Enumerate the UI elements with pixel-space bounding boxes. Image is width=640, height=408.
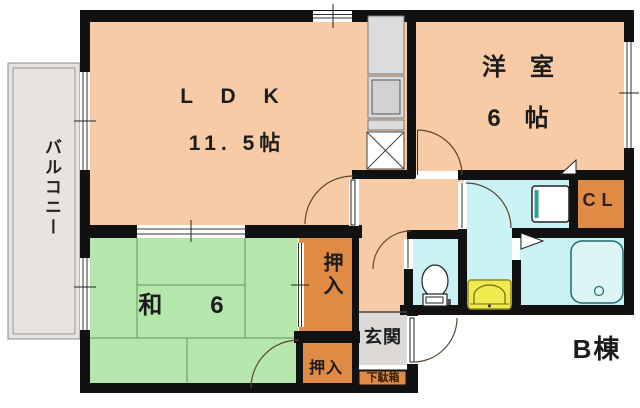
balcony-label: バルコニー bbox=[26, 138, 60, 278]
stove-counter bbox=[367, 132, 404, 169]
washbasin bbox=[468, 280, 511, 309]
washing-machine bbox=[532, 186, 569, 222]
kitchen-unit bbox=[367, 16, 404, 169]
western-room-label: 洋 室 bbox=[430, 55, 606, 81]
western-room-floor bbox=[410, 14, 630, 176]
closet-lower-label: 押入 bbox=[299, 360, 353, 378]
japanese-room-window bbox=[80, 258, 90, 330]
closet-upper-label: 押入 bbox=[314, 252, 342, 326]
ldk-door-leaf bbox=[351, 180, 355, 225]
entrance-label: 玄関 bbox=[359, 328, 407, 348]
entrance-door-arc bbox=[413, 318, 457, 362]
entrance-door-leaf bbox=[410, 318, 414, 362]
ldk-label: L D K bbox=[130, 85, 340, 108]
building-label: B棟 bbox=[553, 335, 640, 364]
western-room-size-label: 6 帖 bbox=[430, 106, 606, 132]
western-room-doorway bbox=[416, 171, 458, 179]
ldk-size-label: 11. 5帖 bbox=[128, 132, 346, 155]
japanese-room-label: 和 6 bbox=[103, 293, 271, 319]
floor-plan: バルコニー L D K 11. 5帖 洋 室 6 帖 和 6 押入 押入 玄関 … bbox=[0, 0, 640, 408]
refrigerator-space bbox=[368, 16, 404, 74]
bathtub-fixture bbox=[571, 241, 623, 303]
western-room-window bbox=[624, 42, 634, 148]
closet-cl-label: CL bbox=[578, 191, 623, 211]
shoe-cabinet-label: 下駄箱 bbox=[358, 372, 408, 384]
